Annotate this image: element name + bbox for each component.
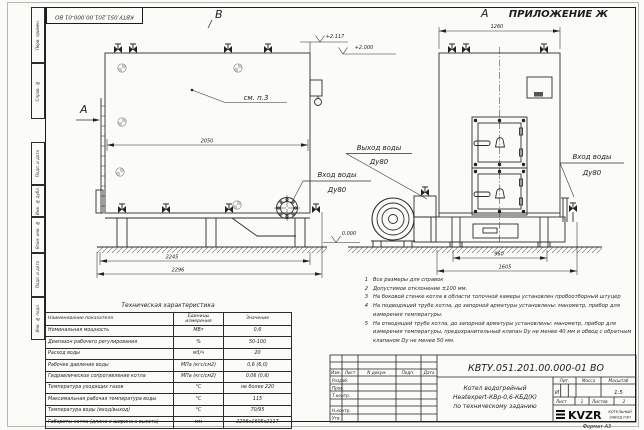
row-name: Максимальная рабочая температура воды <box>46 394 174 405</box>
tech-characteristics: Техническая характеристика Наименование … <box>45 300 291 429</box>
note-text: На подводящей трубе котла, до запорной а… <box>373 302 633 319</box>
product-name-line2: Heatexpert-КВр-0,6-КБД(К) <box>453 394 537 401</box>
table-row: Максимальная рабочая температура воды°С1… <box>46 394 292 405</box>
water-outlet-dn: Ду80 <box>369 158 389 166</box>
tech-table: Наименование показателя Единицы измерени… <box>45 312 292 429</box>
row-value: 70/95 <box>224 405 292 416</box>
inlet-pipe-front <box>561 198 577 222</box>
tech-table-title: Техническая характеристика <box>45 300 291 312</box>
note-text: Все размеры для справок <box>373 276 633 285</box>
table-row: Расход водым3/ч20 <box>46 348 292 359</box>
row-units: °С <box>174 405 224 416</box>
format-label: Формат А3 <box>583 424 611 430</box>
row-value: 0,6 (6,0) <box>224 360 292 371</box>
company-name-line2: ЗАВОД РЭП <box>609 416 631 420</box>
product-name-line1: Котел водогрейный <box>464 385 527 392</box>
see-note-callout: см. п.3 <box>191 89 287 103</box>
table-header-row: Наименование показателя Единицы измерени… <box>46 313 292 326</box>
appendix-label: ПРИЛОЖЕНИЕ Ж <box>509 9 609 20</box>
product-name-line3: по техническому заданию <box>453 403 536 410</box>
note-number: 3 <box>357 293 373 302</box>
elevation-ground: 0.000 <box>342 231 356 237</box>
company-logo: KVZR КОТЕЛЬНЫЙ ЗАВОД РЭП <box>556 409 632 422</box>
row-name: Номинальная мощность <box>46 326 174 337</box>
see-note-text: см. п.3 <box>244 94 269 102</box>
row-value: 20 <box>224 348 292 359</box>
row-name: Расход воды <box>46 348 174 359</box>
valve-icons-top <box>114 44 272 53</box>
sig-prov: Пров. <box>332 386 344 391</box>
table-row: Номинальная мощностьМВт0,6 <box>46 326 292 337</box>
dim-front-top: 1260 <box>491 24 504 30</box>
lit-value: И <box>555 390 559 396</box>
survey-point-icons <box>116 64 242 209</box>
row-name: Рабочее давление воды <box>46 360 174 371</box>
note-item: 3 На боковой стенке котла в области топо… <box>357 293 633 302</box>
water-inlet-front-dn: Ду80 <box>582 169 602 177</box>
elevation-marks <box>300 36 396 243</box>
header-name: Наименование показателя <box>46 313 174 326</box>
note-text: На боковой стенке котла в области топочн… <box>373 293 633 302</box>
row-units: м3/ч <box>174 348 224 359</box>
sig-utv: Утв. <box>332 416 341 421</box>
row-value: не более 220 <box>224 382 292 393</box>
sheets-value: 2 <box>623 399 626 404</box>
row-value: 0,06 (0,6) <box>224 371 292 382</box>
col-izm: Изм. <box>331 370 341 375</box>
door-lock-icon <box>496 189 505 198</box>
elevation-mid: +2.000 <box>355 45 374 51</box>
dim-side-base: 2245 <box>166 255 179 261</box>
row-name: Температура уходящих газов <box>46 382 174 393</box>
table-row: Диапазон рабочего регулирования%50-100 <box>46 337 292 348</box>
note-item: 4 На подводящей трубе котла, до запорной… <box>357 302 633 319</box>
row-units: МПа (кгс/см2) <box>174 360 224 371</box>
header-units: Единицы измерения <box>174 313 224 326</box>
sig-tkontr: Т.контр. <box>332 393 350 398</box>
section-a-label: А <box>79 103 88 116</box>
scale-value: 1:5 <box>614 390 623 396</box>
note-number: 5 <box>357 320 373 346</box>
view-b-label: В <box>215 8 223 21</box>
water-inlet-side-label: Вход воды <box>317 171 357 179</box>
door-lock-icon <box>496 138 505 147</box>
sheets-label: Листов <box>591 399 608 404</box>
table-row: Температура уходящих газов°Сне более 220 <box>46 382 292 393</box>
row-units: °С <box>174 382 224 393</box>
note-item: 5 На отводящей трубе котла, до запорной … <box>357 320 633 346</box>
water-outlet-label: Выход воды <box>357 144 402 152</box>
row-name: Гидравлическое сопротивление котла <box>46 371 174 382</box>
valve-icons-bottom <box>118 204 320 213</box>
row-units: МПа (кгс/см2) <box>174 371 224 382</box>
row-name: Габариты котла (длина х ширина х высота) <box>46 417 174 428</box>
note-number: 2 <box>357 285 373 294</box>
note-item: 1 Все размеры для справок <box>357 276 633 285</box>
dim-side-overall: 2296 <box>172 268 185 274</box>
col-data: Дата <box>423 370 435 375</box>
note-item: 2 Допустимое отклонение ±100 мм. <box>357 285 633 294</box>
water-inlet-side-dn: Ду80 <box>327 186 347 194</box>
note-text: На отводящей трубе котла, до запорной ар… <box>373 320 633 346</box>
lit-header: Лит. <box>559 378 570 383</box>
row-value: 2296х1605х2117 <box>224 417 292 428</box>
pipe-labels: Выход воды Ду80 Вход воды Ду80 Вход воды… <box>291 144 624 204</box>
row-units: мм <box>174 417 224 428</box>
table-row: Рабочее давление водыМПа (кгс/см2)0,6 (6… <box>46 360 292 371</box>
side-view <box>96 44 327 253</box>
sig-nkontr: Н.контр. <box>332 408 351 413</box>
mass-header: Масса <box>582 378 596 383</box>
table-row: Температура воды (вход/выход)°С70/95 <box>46 405 292 416</box>
view-a-label: А <box>480 7 489 20</box>
elevation-top: +2.117 <box>326 34 345 40</box>
side-view-dimensions <box>97 139 322 278</box>
base-frame <box>431 213 565 247</box>
col-ndokum: N докум. <box>367 370 386 375</box>
sheet-label: Лист <box>555 399 567 404</box>
title-block-text: Изм. Лист N докум. Подп. Дата Разраб. Пр… <box>331 363 632 430</box>
company-logo-text: KVZR <box>568 409 602 422</box>
fan-icon <box>371 187 436 247</box>
drawing-sheet: Перв. примен. Справ. № Подп. и дата Инв.… <box>0 0 644 430</box>
row-value: 50-100 <box>224 337 292 348</box>
note-number: 4 <box>357 302 373 319</box>
door-handle <box>474 192 490 197</box>
dim-side-top: 2050 <box>201 139 214 145</box>
dim-front-overall: 1605 <box>499 265 512 271</box>
row-units: °С <box>174 394 224 405</box>
inlet-flange-icon <box>274 195 300 221</box>
valve-icons-front-top <box>448 44 548 53</box>
row-name: Температура воды (вход/выход) <box>46 405 174 416</box>
row-value: 0,6 <box>224 326 292 337</box>
col-podp: Подп. <box>402 370 415 375</box>
row-value: 115 <box>224 394 292 405</box>
header-value: Значение <box>224 313 292 326</box>
table-row: Габариты котла (длина х ширина х высота)… <box>46 417 292 428</box>
dim-front-base: 960 <box>494 252 504 258</box>
note-number: 1 <box>357 276 373 285</box>
sheet-value: 1 <box>581 399 584 404</box>
door-handle <box>474 141 490 146</box>
row-units: % <box>174 337 224 348</box>
company-name-line1: КОТЕЛЬНЫЙ <box>608 409 632 414</box>
sight-panel <box>527 77 552 98</box>
notes: 1 Все размеры для справок 2 Допустимое о… <box>357 276 633 346</box>
doc-number: КВТУ.051.201.00.000-01 ВО <box>468 363 604 374</box>
scale-header: Масштаб <box>609 378 629 383</box>
table-row: Гидравлическое сопротивление котлаМПа (к… <box>46 371 292 382</box>
note-text: Допустимое отклонение ±100 мм. <box>373 285 633 294</box>
row-name: Диапазон рабочего регулирования <box>46 337 174 348</box>
water-inlet-front-label: Вход воды <box>572 153 612 161</box>
row-units: МВт <box>174 326 224 337</box>
sig-razrab: Разраб. <box>332 378 348 383</box>
col-list: Лист <box>344 370 356 375</box>
